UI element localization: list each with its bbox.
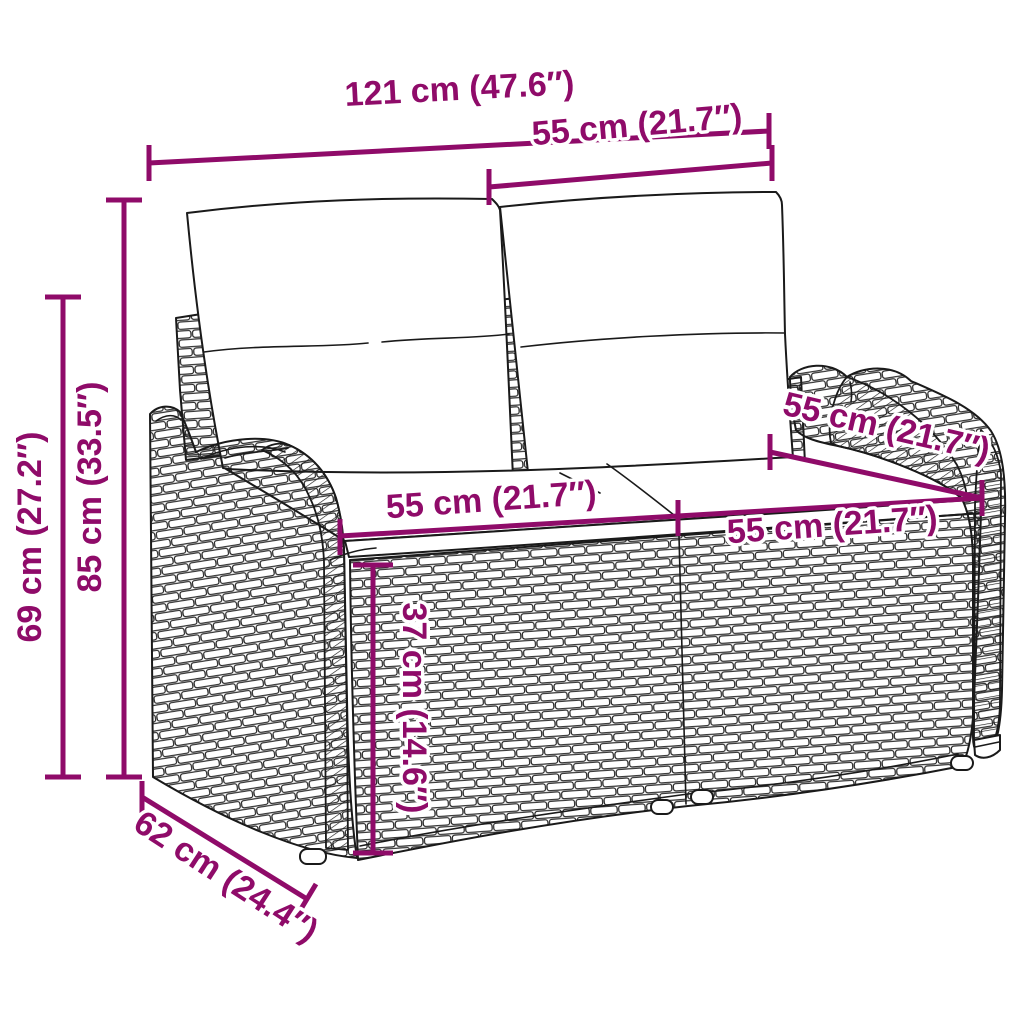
foot <box>651 800 673 814</box>
diagram-canvas: 121 cm (47.6″) 55 cm (21.7″) 85 cm (33.5… <box>0 0 1024 1024</box>
dimension-label-frame-height: 69 cm (27.2″) <box>11 432 49 643</box>
foot <box>300 849 326 864</box>
dimension-label-seat-height: 37 cm (14.6″) <box>395 603 433 814</box>
foot <box>691 790 713 804</box>
dimension-label-overall-width: 121 cm (47.6″) <box>344 64 576 114</box>
dimension-section-width: 55 cm (21.7″) <box>489 97 772 205</box>
bench-dimension-diagram: 121 cm (47.6″) 55 cm (21.7″) 85 cm (33.5… <box>0 0 1024 1024</box>
back-cushion-right <box>500 192 793 482</box>
dimension-line <box>489 163 772 187</box>
corner-column-right <box>974 430 1001 758</box>
dimension-overall-height: 85 cm (33.5″) <box>71 200 142 777</box>
dimension-label-section-width: 55 cm (21.7″) <box>530 97 743 153</box>
foot <box>951 756 973 770</box>
dimension-label-overall-height: 85 cm (33.5″) <box>71 382 109 593</box>
